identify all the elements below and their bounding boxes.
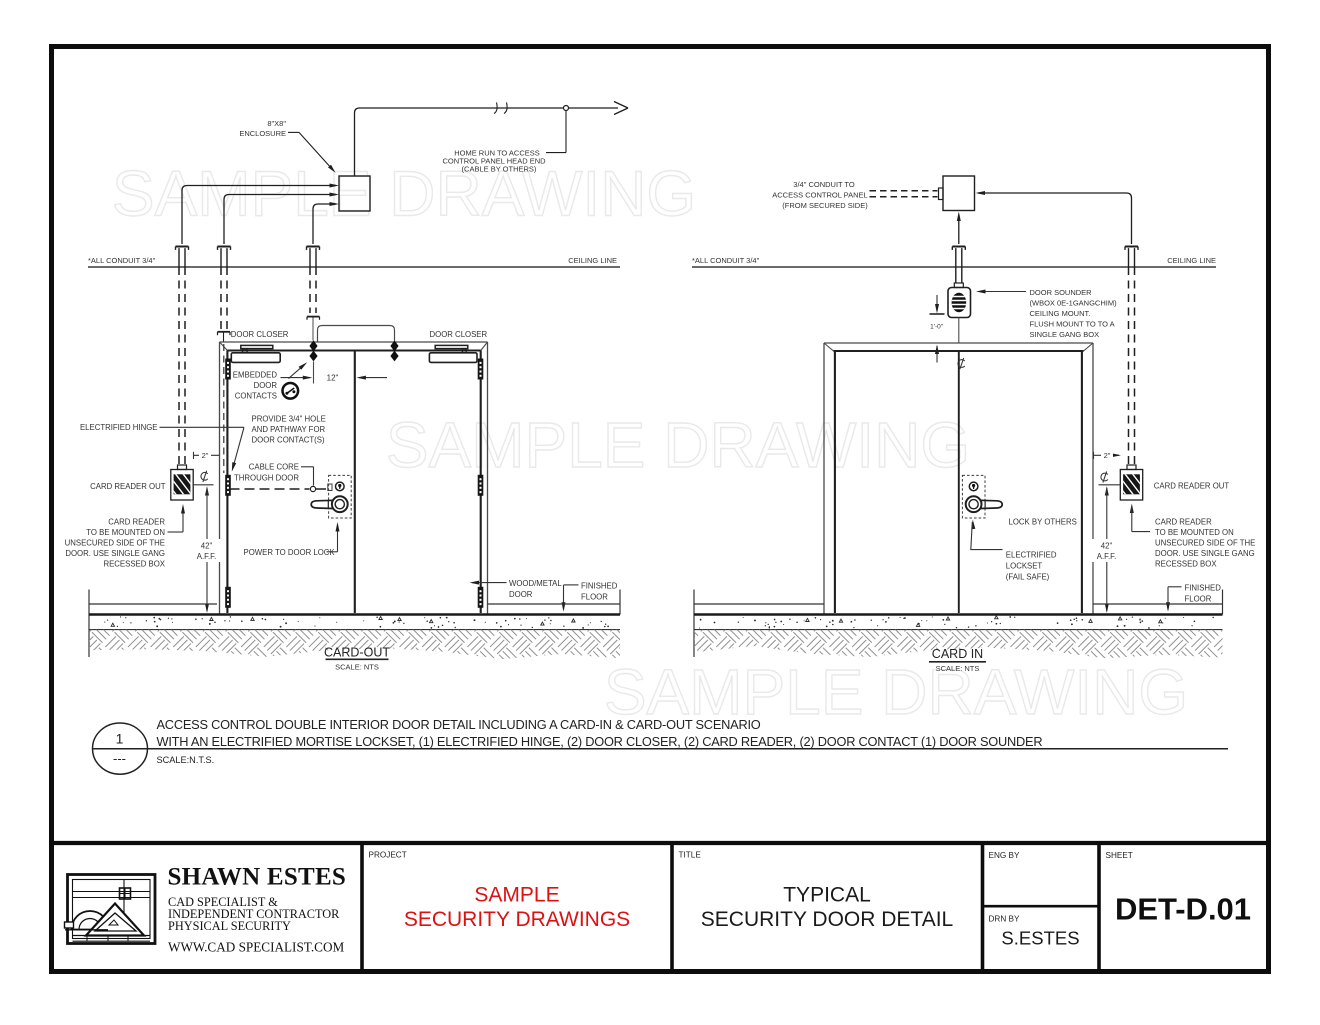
svg-text:*ALL CONDUIT 3/4": *ALL CONDUIT 3/4" — [88, 256, 156, 265]
svg-text:UNSECURED SIDE OF THE: UNSECURED SIDE OF THE — [1155, 538, 1255, 547]
svg-text:DOOR SOUNDER: DOOR SOUNDER — [1030, 288, 1093, 297]
svg-text:ELECTRIFIED HINGE: ELECTRIFIED HINGE — [80, 423, 158, 432]
svg-text:ENCLOSURE: ENCLOSURE — [239, 129, 286, 138]
svg-text:DRN BY: DRN BY — [989, 915, 1020, 924]
svg-text:(WBOX 0E-1GANGCHIM): (WBOX 0E-1GANGCHIM) — [1030, 298, 1118, 307]
svg-text:SHEET: SHEET — [1106, 851, 1133, 860]
svg-text:TO BE MOUNTED ON: TO BE MOUNTED ON — [86, 528, 165, 537]
svg-text:DET-D.01: DET-D.01 — [1115, 892, 1251, 927]
svg-text:(FAIL SAFE): (FAIL SAFE) — [1006, 572, 1050, 581]
svg-text:LOCK BY OTHERS: LOCK BY OTHERS — [1009, 517, 1077, 526]
svg-text:ENG BY: ENG BY — [989, 851, 1020, 860]
svg-text:TYPICAL: TYPICAL — [783, 884, 871, 907]
svg-text:DOOR CLOSER: DOOR CLOSER — [430, 330, 488, 339]
svg-text:2": 2" — [1104, 451, 1111, 460]
svg-text:CARD READER: CARD READER — [1155, 517, 1212, 526]
svg-text:SECURITY DOOR DETAIL: SECURITY DOOR DETAIL — [701, 908, 953, 931]
svg-text:SCALE: NTS: SCALE: NTS — [936, 664, 980, 673]
svg-text:CARD READER: CARD READER — [108, 518, 165, 527]
svg-text:CARD-OUT: CARD-OUT — [324, 645, 390, 659]
svg-text:S.ESTES: S.ESTES — [1001, 928, 1079, 949]
svg-text:DOOR CONTACT(S): DOOR CONTACT(S) — [252, 435, 325, 444]
svg-text:A.F.F.: A.F.F. — [1097, 552, 1117, 561]
svg-text:TO BE MOUNTED ON: TO BE MOUNTED ON — [1155, 528, 1234, 537]
svg-text:*ALL CONDUIT 3/4": *ALL CONDUIT 3/4" — [692, 256, 760, 265]
svg-text:LOCKSET: LOCKSET — [1006, 561, 1043, 570]
svg-text:2": 2" — [202, 451, 209, 460]
svg-text:SAMPLE: SAMPLE — [474, 884, 559, 907]
svg-text:CEILING MOUNT.: CEILING MOUNT. — [1030, 309, 1091, 318]
svg-text:ELECTRIFIED: ELECTRIFIED — [1006, 550, 1057, 559]
svg-text:DOOR. USE SINGLE GANG: DOOR. USE SINGLE GANG — [65, 549, 165, 558]
svg-text:CARD READER OUT: CARD READER OUT — [90, 482, 166, 491]
svg-text:A.F.F.: A.F.F. — [197, 552, 217, 561]
svg-text:DOOR: DOOR — [509, 590, 533, 599]
svg-text:RECESSED BOX: RECESSED BOX — [1155, 559, 1217, 568]
svg-text:DOOR. USE SINGLE GANG: DOOR. USE SINGLE GANG — [1155, 549, 1255, 558]
svg-text:AND PATHWAY FOR: AND PATHWAY FOR — [252, 425, 326, 434]
svg-text:UNSECURED SIDE OF THE: UNSECURED SIDE OF THE — [65, 539, 165, 548]
svg-text:POWER TO DOOR LOCK: POWER TO DOOR LOCK — [244, 548, 336, 557]
svg-text:CEILING LINE: CEILING LINE — [1167, 256, 1216, 265]
svg-text:CONTACTS: CONTACTS — [235, 392, 277, 401]
svg-text:SAMPLE DRAWING: SAMPLE DRAWING — [386, 409, 970, 481]
svg-text:THROUGH DOOR: THROUGH DOOR — [234, 474, 299, 483]
svg-text:SHAWN ESTES: SHAWN ESTES — [168, 864, 347, 891]
svg-text:WWW.CAD SPECIALIST.COM: WWW.CAD SPECIALIST.COM — [168, 940, 344, 955]
svg-text:42": 42" — [201, 542, 213, 551]
svg-text:12": 12" — [327, 374, 339, 383]
svg-text:ACCESS CONTROL DOUBLE INTERIOR: ACCESS CONTROL DOUBLE INTERIOR DOOR DETA… — [157, 717, 761, 732]
svg-text:DOOR: DOOR — [254, 381, 278, 390]
svg-text:SAMPLE DRAWING: SAMPLE DRAWING — [112, 158, 696, 230]
svg-text:(CABLE BY OTHERS): (CABLE BY OTHERS) — [462, 165, 537, 174]
svg-text:SCALE: NTS: SCALE: NTS — [335, 663, 379, 672]
svg-text:FLUSH MOUNT TO TO A: FLUSH MOUNT TO TO A — [1030, 320, 1115, 329]
svg-text:PHYSICAL SECURITY: PHYSICAL SECURITY — [168, 919, 291, 933]
svg-text:CARD IN: CARD IN — [932, 647, 983, 661]
svg-text:42": 42" — [1101, 542, 1113, 551]
svg-text:1: 1 — [116, 731, 124, 747]
svg-text:TITLE: TITLE — [679, 851, 702, 860]
svg-text:3/4" CONDUIT TO: 3/4" CONDUIT TO — [793, 180, 855, 189]
svg-text:FINISHED: FINISHED — [581, 582, 618, 591]
svg-text:DOOR CLOSER: DOOR CLOSER — [231, 330, 289, 339]
svg-text:CABLE CORE: CABLE CORE — [249, 463, 299, 472]
svg-text:FLOOR: FLOOR — [1185, 594, 1212, 603]
svg-text:8"X8": 8"X8" — [267, 119, 286, 128]
svg-text:(FROM SECURED SIDE): (FROM SECURED SIDE) — [782, 201, 868, 210]
svg-text:SECURITY DRAWINGS: SECURITY DRAWINGS — [404, 908, 630, 931]
svg-text:1'-0": 1'-0" — [930, 324, 944, 331]
svg-text:PROJECT: PROJECT — [369, 851, 407, 860]
svg-text:PROVIDE 3/4" HOLE: PROVIDE 3/4" HOLE — [252, 414, 326, 423]
svg-text:SCALE:N.T.S.: SCALE:N.T.S. — [157, 755, 215, 765]
svg-text:---: --- — [113, 751, 126, 766]
svg-text:CARD READER OUT: CARD READER OUT — [1154, 481, 1230, 490]
svg-text:WOOD/METAL: WOOD/METAL — [509, 579, 562, 588]
svg-text:CEILING LINE: CEILING LINE — [568, 256, 617, 265]
svg-text:ACCESS CONTROL PANEL: ACCESS CONTROL PANEL — [772, 190, 867, 199]
svg-text:EMBEDDED: EMBEDDED — [233, 371, 278, 380]
svg-text:FINISHED: FINISHED — [1185, 583, 1222, 592]
svg-text:WITH AN ELECTRIFIED MORTISE LO: WITH AN ELECTRIFIED MORTISE LOCKSET, (1)… — [157, 734, 1043, 749]
svg-text:RECESSED BOX: RECESSED BOX — [103, 560, 165, 569]
svg-text:SINGLE GANG BOX: SINGLE GANG BOX — [1030, 330, 1100, 339]
svg-text:FLOOR: FLOOR — [581, 593, 608, 602]
